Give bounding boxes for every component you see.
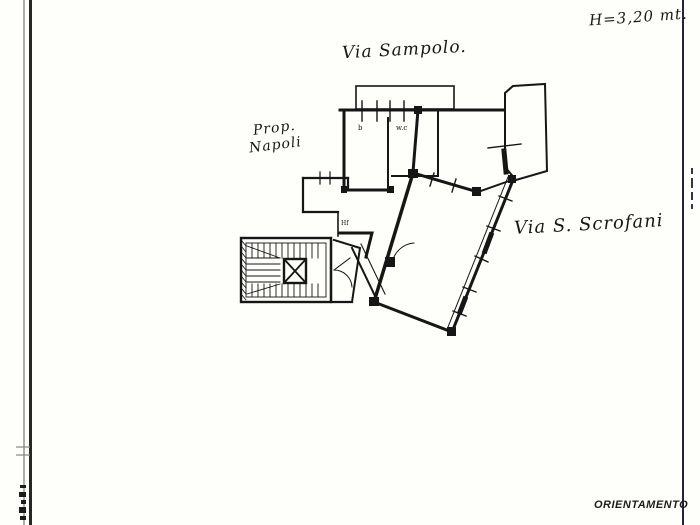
balcony-top — [356, 86, 454, 109]
elevator-shaft — [284, 259, 306, 283]
room-b-label: b — [358, 124, 363, 132]
owner-annotation: Prop. Napoli — [252, 117, 303, 156]
corridor-mark-label: Hf — [341, 220, 349, 227]
main-hall — [374, 173, 513, 332]
staircase — [241, 238, 331, 302]
wall-nodes — [341, 106, 516, 336]
right-edge-scan-marks — [691, 168, 693, 209]
orientation-label: ORIENTAMENTO — [594, 499, 688, 511]
small-rooms-block — [344, 110, 438, 190]
scanned-floor-plan-sheet: b w.c Hf Via Sampolo. H=3,20 mt. Prop. N… — [0, 0, 700, 525]
left-edge-scan-marks — [16, 447, 30, 520]
floor-plan-drawing: b w.c Hf — [0, 0, 700, 525]
corner-bay — [488, 84, 547, 180]
room-wc-label: w.c — [396, 124, 407, 132]
